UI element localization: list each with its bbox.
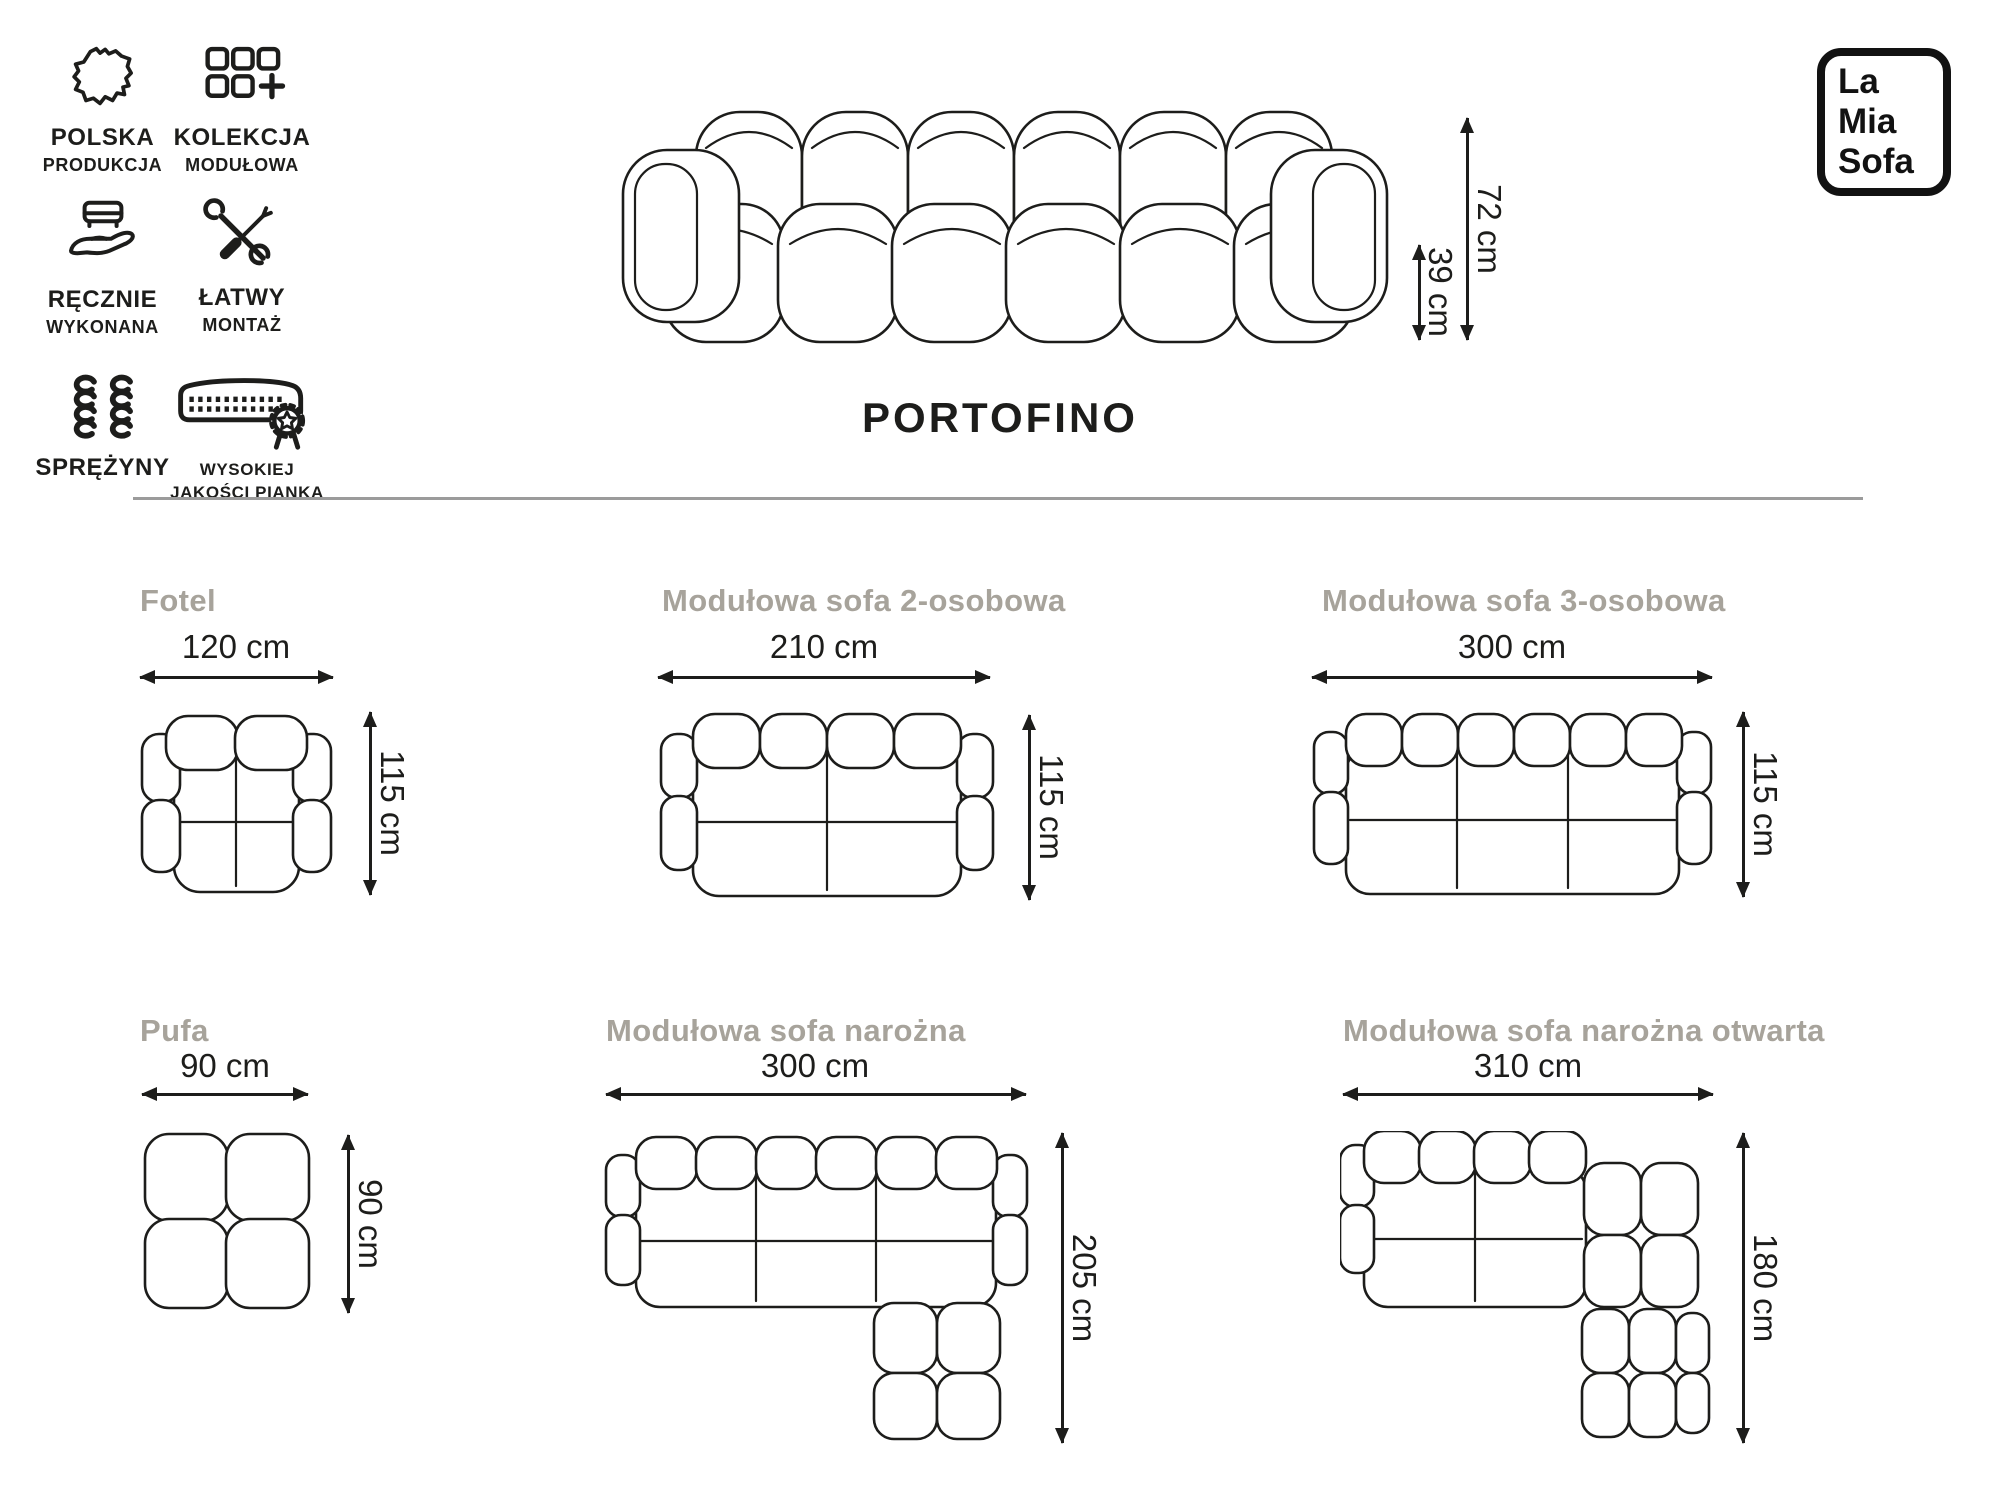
- feature-sprezyny: SPRĘŻYNY: [30, 370, 175, 485]
- feature-label: RĘCZNIE: [48, 286, 158, 314]
- depth-arrow: [1742, 1133, 1745, 1443]
- bottom-module: [1582, 1309, 1709, 1437]
- feature-label: SPRĘŻYNY: [35, 454, 169, 482]
- feature-sublabel: PRODUKCJA: [43, 155, 162, 176]
- feature-label: ŁATWY: [199, 284, 286, 312]
- feature-sublabel: WYKONANA: [46, 317, 159, 338]
- fotel-top-view-drawing: [138, 710, 335, 895]
- variant-width-label: 90 cm: [180, 1047, 270, 1085]
- total-height-arrow: [1466, 118, 1469, 340]
- width-arrow: [658, 676, 990, 679]
- feature-label: WYSOKIEJ: [200, 460, 295, 480]
- depth-arrow: [369, 712, 372, 895]
- variant-depth-label: 115 cm: [373, 750, 411, 856]
- poland-map-icon: [66, 42, 140, 116]
- variant-width-label: 300 cm: [761, 1047, 869, 1085]
- variant-depth-label: 115 cm: [1746, 751, 1784, 857]
- width-arrow: [1312, 676, 1712, 679]
- easy-assembly-icon: [203, 198, 281, 276]
- variant-title-fotel: Fotel: [140, 583, 216, 619]
- sofa-narozna-otwarta-top-view-drawing: [1340, 1131, 1712, 1441]
- width-arrow: [1343, 1093, 1713, 1096]
- width-arrow: [142, 1093, 308, 1096]
- variant-depth-label: 115 cm: [1032, 754, 1070, 860]
- variant-title-pufa: Pufa: [140, 1013, 209, 1049]
- seat-height-label: 39 cm: [1421, 247, 1459, 337]
- depth-arrow: [1028, 715, 1031, 900]
- foam-quality-icon: [172, 372, 322, 454]
- feature-wysokiej-jakosci-pianka: WYSOKIEJ JAKOŚCI PIANKA: [162, 372, 332, 503]
- feature-latwy-montaz: ŁATWY MONTAŻ: [166, 198, 318, 336]
- variant-depth-label: 180 cm: [1746, 1234, 1784, 1342]
- width-arrow: [606, 1093, 1026, 1096]
- feature-polska-produkcja: POLSKA PRODUKCJA: [30, 42, 175, 176]
- variant-title-sofa-3: Modułowa sofa 3-osobowa: [1322, 583, 1726, 619]
- feature-sublabel: MONTAŻ: [202, 315, 281, 336]
- springs-icon: [62, 370, 144, 446]
- variant-depth-label: 90 cm: [351, 1179, 389, 1269]
- variant-width-label: 310 cm: [1474, 1047, 1582, 1085]
- variant-width-label: 300 cm: [1458, 628, 1566, 666]
- corner-module: [1584, 1163, 1698, 1307]
- variant-title-narozna: Modułowa sofa narożna: [606, 1013, 966, 1049]
- width-arrow: [140, 676, 333, 679]
- sofa-2-top-view-drawing: [657, 708, 997, 903]
- total-height-label: 72 cm: [1470, 184, 1508, 274]
- brand-line: Sofa: [1838, 142, 1943, 182]
- feature-recznie-wykonana: RĘCZNIE WYKONANA: [30, 198, 175, 338]
- feature-sublabel: JAKOŚCI PIANKA: [170, 483, 324, 503]
- depth-arrow: [347, 1135, 350, 1313]
- feature-sublabel: MODUŁOWA: [185, 155, 299, 176]
- brand-line: La: [1838, 62, 1943, 102]
- chaise-module: [874, 1303, 1000, 1439]
- sofa-narozna-top-view-drawing: [604, 1131, 1029, 1443]
- sofa-front-view-drawing: [620, 108, 1390, 345]
- feature-kolekcja-modulowa: KOLEKCJA MODUŁOWA: [166, 42, 318, 176]
- handmade-icon: [61, 198, 145, 278]
- variant-width-label: 210 cm: [770, 628, 878, 666]
- pufa-top-view-drawing: [142, 1131, 312, 1311]
- depth-arrow: [1061, 1133, 1064, 1443]
- depth-arrow: [1742, 712, 1745, 897]
- variant-width-label: 120 cm: [182, 628, 290, 666]
- brand-logo: La Mia Sofa: [1817, 48, 1951, 196]
- modular-collection-icon: [196, 42, 288, 116]
- feature-label: KOLEKCJA: [174, 124, 311, 152]
- section-divider: [133, 497, 1863, 500]
- variant-title-sofa-2: Modułowa sofa 2-osobowa: [662, 583, 1066, 619]
- feature-label: POLSKA: [51, 124, 155, 152]
- sofa-3-top-view-drawing: [1312, 708, 1713, 903]
- portofino-spec-sheet: { "brand": { "name_lines": ["La", "Mia",…: [0, 0, 2000, 1500]
- page-title: PORTOFINO: [600, 394, 1400, 442]
- variant-depth-label: 205 cm: [1065, 1234, 1103, 1342]
- brand-line: Mia: [1838, 102, 1943, 142]
- variant-title-narozna-otwarta: Modułowa sofa narożna otwarta: [1343, 1013, 1825, 1049]
